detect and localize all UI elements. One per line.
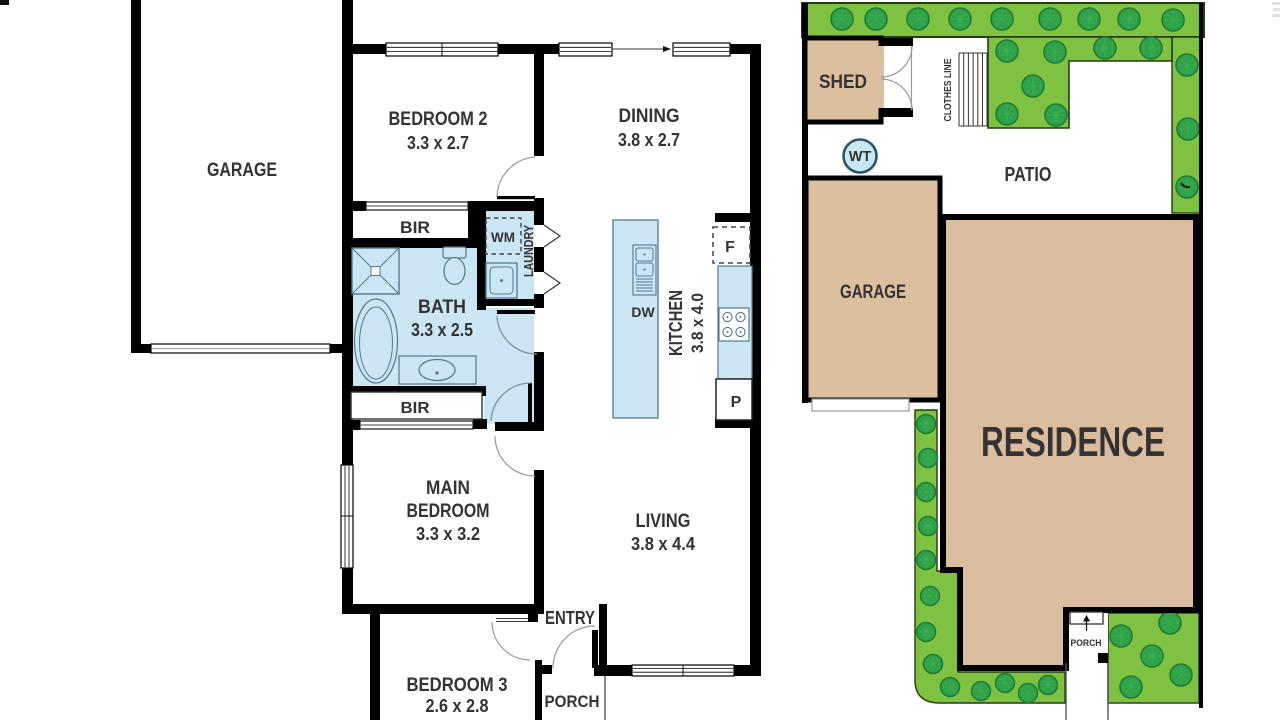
svg-text:KITCHEN: KITCHEN xyxy=(666,290,686,356)
svg-text:DW: DW xyxy=(631,304,655,320)
svg-text:3.8 x 4.4: 3.8 x 4.4 xyxy=(631,534,695,554)
svg-text:PATIO: PATIO xyxy=(1005,164,1052,186)
svg-text:GARAGE: GARAGE xyxy=(840,282,906,303)
svg-text:WT: WT xyxy=(849,149,872,165)
svg-text:P: P xyxy=(731,394,742,411)
svg-text:RESIDENCE: RESIDENCE xyxy=(981,418,1165,465)
svg-text:2.6 x 2.8: 2.6 x 2.8 xyxy=(426,696,489,716)
svg-text:LIVING: LIVING xyxy=(636,511,691,532)
svg-text:BIR: BIR xyxy=(400,219,430,237)
svg-text:LAUNDRY: LAUNDRY xyxy=(521,225,536,277)
svg-text:GARAGE: GARAGE xyxy=(207,160,277,181)
svg-text:MAIN: MAIN xyxy=(426,478,470,499)
svg-text:PORCH: PORCH xyxy=(1071,638,1102,649)
svg-text:DINING: DINING xyxy=(619,106,680,127)
svg-text:BEDROOM 2: BEDROOM 2 xyxy=(389,109,488,130)
svg-text:3.3 x 2.5: 3.3 x 2.5 xyxy=(411,320,473,340)
svg-text:CLOTHES LINE: CLOTHES LINE xyxy=(943,58,954,121)
svg-text:3.8 x 4.0: 3.8 x 4.0 xyxy=(688,293,707,353)
svg-text:WM: WM xyxy=(491,230,515,245)
svg-text:BEDROOM 3: BEDROOM 3 xyxy=(407,675,508,696)
svg-text:F: F xyxy=(725,239,735,256)
svg-text:BIR: BIR xyxy=(401,400,430,417)
svg-text:BATH: BATH xyxy=(418,297,466,318)
svg-text:PORCH: PORCH xyxy=(545,692,600,711)
svg-text:3.3 x 2.7: 3.3 x 2.7 xyxy=(407,133,469,153)
svg-text:SHED: SHED xyxy=(819,72,867,93)
svg-text:3.8 x 2.7: 3.8 x 2.7 xyxy=(618,130,680,150)
svg-text:ENTRY: ENTRY xyxy=(545,608,595,628)
svg-text:BEDROOM: BEDROOM xyxy=(407,501,490,522)
svg-text:3.3 x 3.2: 3.3 x 3.2 xyxy=(416,524,480,544)
